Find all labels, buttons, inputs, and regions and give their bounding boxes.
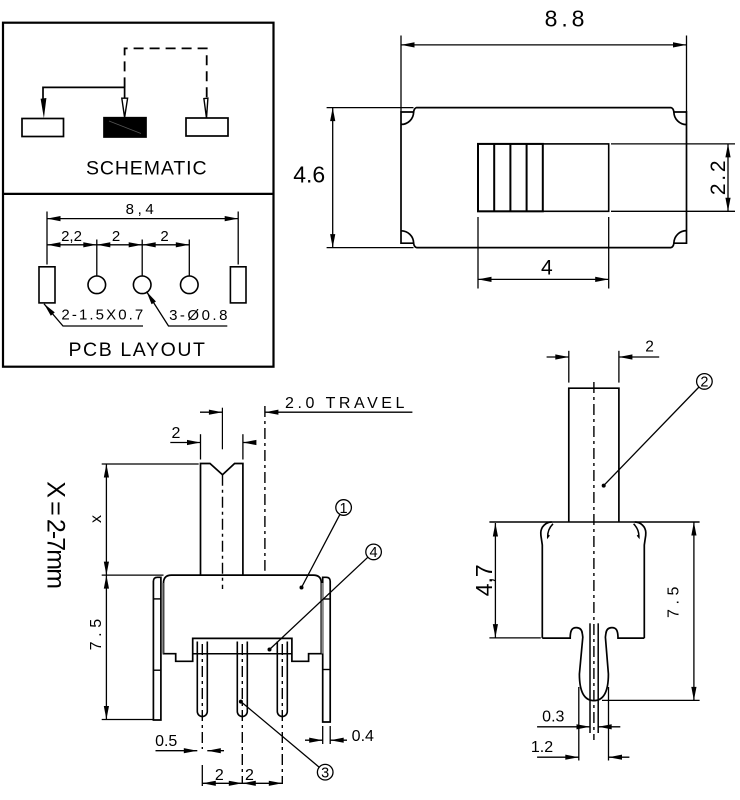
svg-text:7.5: 7.5: [88, 614, 105, 650]
svg-text:2: 2: [112, 228, 120, 245]
svg-text:0.3: 0.3: [542, 709, 564, 726]
svg-text:2.2: 2.2: [707, 158, 730, 195]
svg-text:8.8: 8.8: [545, 5, 589, 31]
svg-text:0.4: 0.4: [352, 728, 374, 745]
svg-text:4,7: 4,7: [471, 564, 497, 596]
svg-text:2: 2: [215, 767, 224, 784]
svg-text:8,4: 8,4: [126, 201, 158, 218]
svg-text:x: x: [88, 515, 105, 523]
svg-text:2: 2: [245, 767, 254, 784]
svg-text:2,2: 2,2: [61, 228, 82, 245]
svg-text:2.0 TRAVEL: 2.0 TRAVEL: [285, 395, 408, 412]
svg-text:4: 4: [541, 257, 553, 280]
svg-text:2: 2: [700, 375, 708, 391]
svg-text:PCB LAYOUT: PCB LAYOUT: [68, 339, 206, 361]
svg-text:2: 2: [160, 228, 168, 245]
svg-text:2: 2: [645, 338, 654, 355]
svg-text:4: 4: [370, 545, 378, 561]
svg-text:2: 2: [172, 425, 181, 442]
svg-text:3-Ø0.8: 3-Ø0.8: [169, 307, 230, 324]
svg-text:X = 2-7mm: X = 2-7mm: [42, 481, 70, 588]
svg-text:2-1.5X0.7: 2-1.5X0.7: [61, 307, 145, 324]
svg-text:3: 3: [321, 766, 329, 782]
svg-text:4.6: 4.6: [293, 162, 325, 188]
svg-text:1.2: 1.2: [531, 739, 553, 756]
svg-text:0.5: 0.5: [155, 733, 177, 750]
svg-text:SCHEMATIC: SCHEMATIC: [86, 157, 208, 179]
svg-text:7.5: 7.5: [666, 582, 683, 618]
svg-text:1: 1: [340, 501, 348, 517]
